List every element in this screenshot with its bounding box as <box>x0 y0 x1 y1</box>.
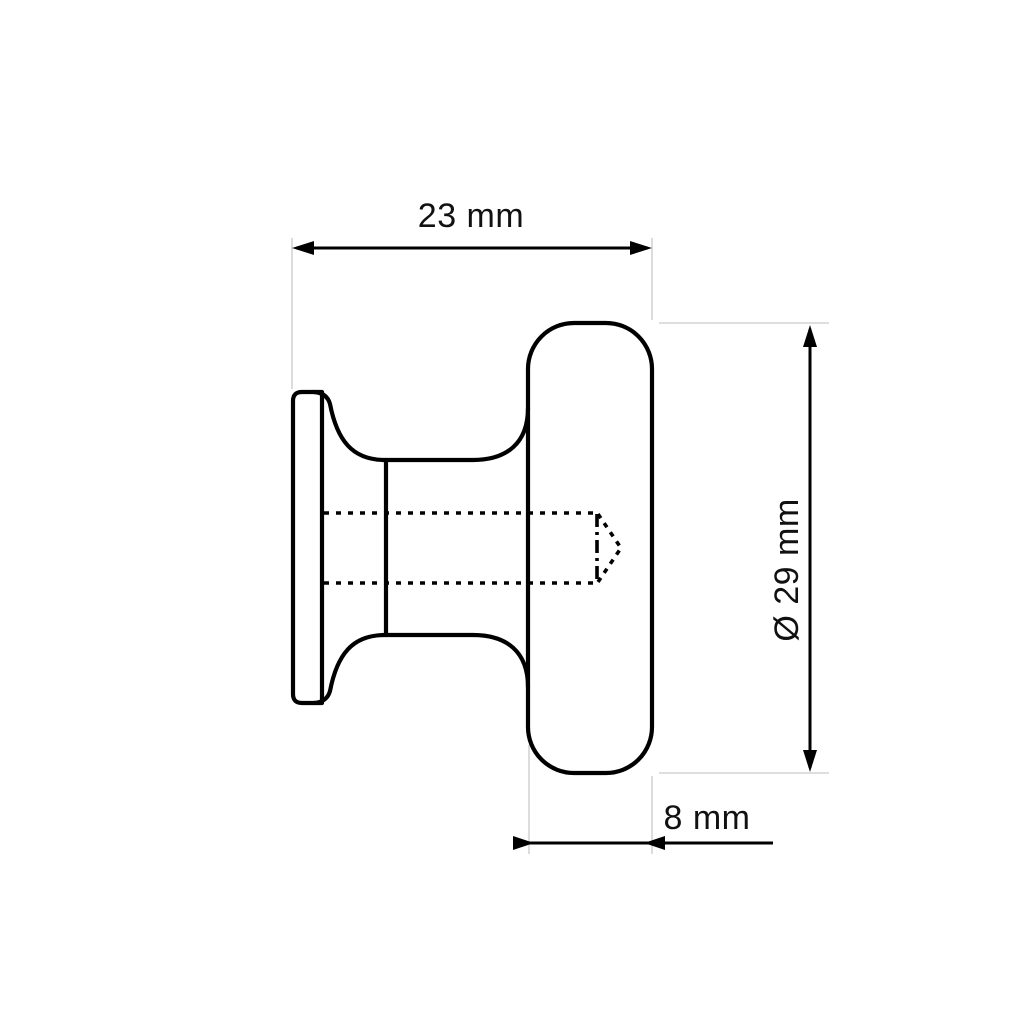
diameter-arrowhead-bottom <box>803 750 817 772</box>
thickness-arrowhead-left <box>513 836 534 850</box>
knob-profile-drawing <box>0 0 1024 1024</box>
technical-drawing-canvas: 23 mm Ø 29 mm 8 mm <box>0 0 1024 1024</box>
neck-top-curve <box>314 392 528 460</box>
head-outline <box>528 323 652 773</box>
width-arrowhead-left <box>292 241 314 255</box>
thickness-arrowhead-right <box>644 836 665 850</box>
diameter-arrowhead-top <box>803 325 817 347</box>
base-plate-outline <box>293 392 322 703</box>
dimension-label-diameter: Ø 29 mm <box>770 498 804 641</box>
drill-tip-upper-edge <box>598 514 621 548</box>
neck-bottom-curve <box>314 635 528 703</box>
width-arrowhead-right <box>630 241 652 255</box>
dimension-label-width: 23 mm <box>418 199 524 233</box>
drill-tip-lower-edge <box>598 548 621 582</box>
dimension-label-thickness: 8 mm <box>664 801 751 835</box>
